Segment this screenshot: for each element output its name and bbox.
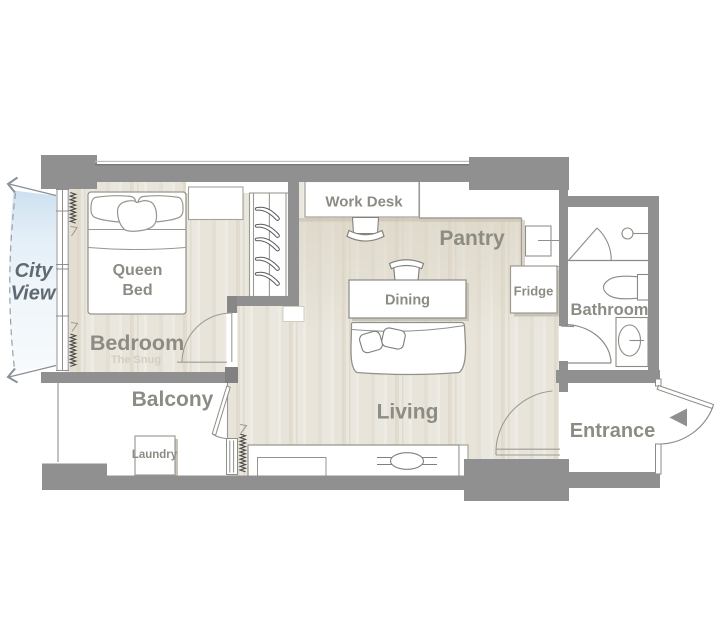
svg-text:Dining: Dining bbox=[385, 293, 430, 309]
svg-text:Work Desk: Work Desk bbox=[325, 194, 403, 211]
svg-text:Laundry: Laundry bbox=[132, 449, 178, 461]
svg-text:View: View bbox=[11, 283, 57, 305]
svg-text:Bedroom: Bedroom bbox=[90, 331, 184, 355]
svg-text:City: City bbox=[15, 260, 54, 282]
svg-text:Balcony: Balcony bbox=[132, 388, 214, 411]
svg-text:Living: Living bbox=[377, 401, 439, 424]
svg-text:Fridge: Fridge bbox=[514, 284, 554, 299]
svg-text:Bathroom: Bathroom bbox=[571, 301, 649, 319]
svg-text:Pantry: Pantry bbox=[439, 227, 505, 250]
svg-text:Queen: Queen bbox=[113, 262, 163, 279]
svg-text:Entrance: Entrance bbox=[570, 420, 656, 442]
svg-text:Bed: Bed bbox=[122, 282, 152, 299]
svg-text:The Snug: The Snug bbox=[111, 354, 161, 366]
